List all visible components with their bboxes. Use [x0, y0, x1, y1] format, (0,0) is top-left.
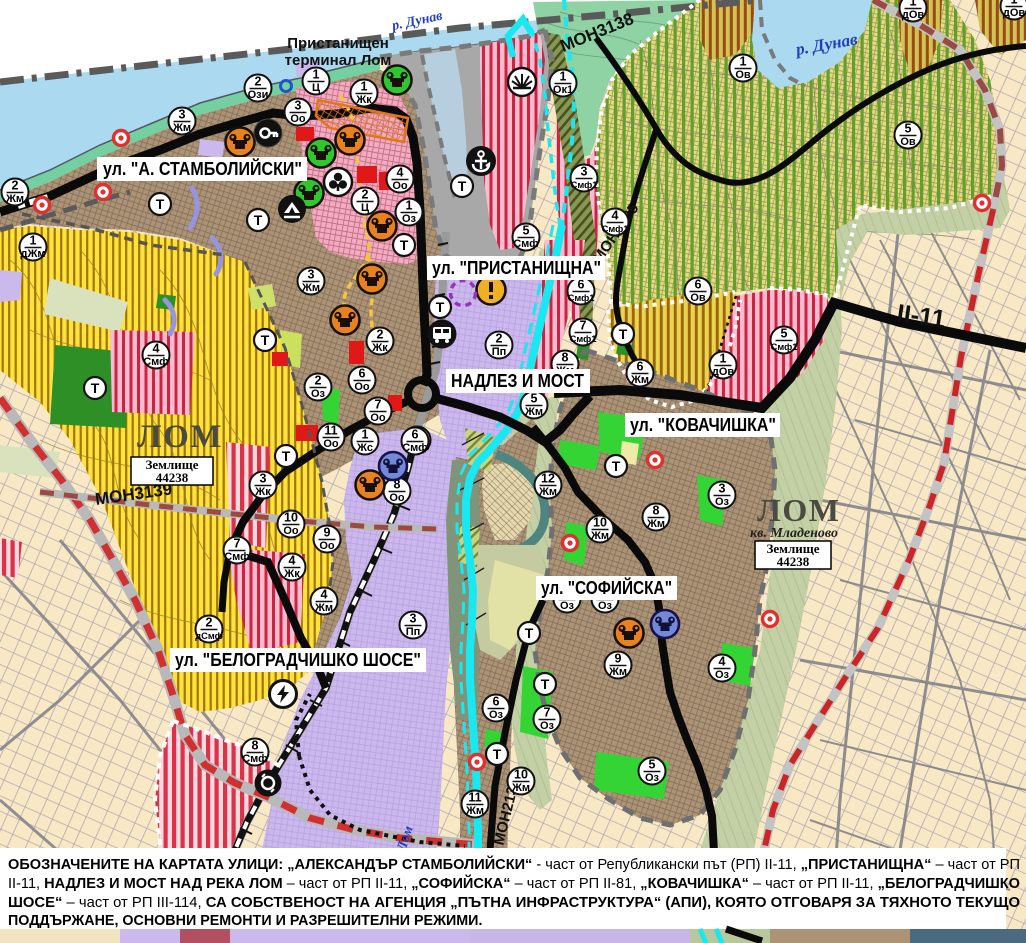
svg-text:Смф1: Смф1	[571, 180, 598, 190]
svg-text:8: 8	[252, 739, 259, 753]
svg-text:7: 7	[580, 319, 587, 333]
svg-text:Жм: Жм	[5, 193, 24, 205]
svg-text:дОв: дОв	[712, 366, 735, 378]
svg-text:1: 1	[30, 234, 37, 248]
svg-text:4: 4	[719, 655, 726, 669]
svg-text:Т: Т	[493, 746, 502, 762]
svg-text:2: 2	[362, 188, 369, 202]
svg-text:Т: Т	[525, 625, 534, 641]
svg-text:Оо: Оо	[290, 113, 306, 125]
svg-text:II-11, НАДЛЕЗ И МОСТ НАД РЕКА: II-11, НАДЛЕЗ И МОСТ НАД РЕКА ЛОМ – част…	[8, 874, 1020, 892]
svg-text:9: 9	[615, 652, 622, 666]
svg-text:7: 7	[544, 706, 551, 720]
svg-text:Т: Т	[156, 196, 165, 212]
svg-text:6: 6	[412, 428, 419, 442]
svg-text:Оо: Оо	[319, 540, 335, 552]
svg-text:Т: Т	[436, 299, 445, 315]
svg-text:3: 3	[410, 612, 417, 626]
svg-text:ул. "КОВАЧИШКА": ул. "КОВАЧИШКА"	[630, 415, 776, 435]
svg-text:6: 6	[637, 360, 644, 374]
svg-text:Т: Т	[619, 326, 628, 342]
svg-text:Жм: Жм	[172, 122, 191, 134]
svg-text:2: 2	[496, 332, 503, 346]
svg-text:Т: Т	[400, 237, 409, 253]
svg-text:Смф: Смф	[143, 356, 169, 368]
svg-text:Жм: Жм	[465, 805, 484, 817]
svg-text:Т: Т	[261, 332, 270, 348]
svg-text:Жм: Жм	[538, 486, 557, 498]
svg-text:кв. Младеново: кв. Младеново	[750, 526, 838, 541]
svg-text:Жм: Жм	[314, 602, 333, 614]
svg-text:Оз: Оз	[560, 600, 575, 612]
svg-text:10: 10	[514, 768, 528, 782]
svg-text:Оз: Оз	[715, 669, 730, 681]
svg-text:5: 5	[531, 392, 538, 406]
svg-text:Жк: Жк	[355, 94, 372, 106]
svg-text:Жк: Жк	[254, 486, 271, 498]
svg-text:3: 3	[295, 99, 302, 113]
svg-text:1: 1	[313, 68, 320, 82]
svg-text:Т: Т	[254, 212, 263, 228]
svg-text:Оо: Оо	[323, 438, 339, 450]
svg-text:Т: Т	[612, 458, 621, 474]
svg-text:Жк: Жк	[371, 342, 388, 354]
svg-text:дЖм: дЖм	[20, 248, 45, 260]
svg-text:Пп: Пп	[492, 346, 507, 358]
svg-text:Жс: Жс	[356, 442, 373, 454]
svg-text:ул. "А. СТАМБОЛИЙСКИ": ул. "А. СТАМБОЛИЙСКИ"	[103, 158, 302, 179]
svg-text:2: 2	[377, 328, 384, 342]
svg-text:Смф: Смф	[224, 551, 250, 563]
svg-text:дОв: дОв	[1003, 7, 1026, 19]
svg-text:Оо: Оо	[389, 492, 405, 504]
svg-text:Оо: Оо	[370, 412, 386, 424]
svg-text:Смф1: Смф1	[570, 334, 597, 344]
svg-text:Смф: Смф	[242, 753, 268, 765]
svg-text:2: 2	[255, 75, 262, 89]
svg-text:3: 3	[581, 165, 588, 179]
svg-text:Жм: Жм	[590, 530, 609, 542]
svg-text:Смф1: Смф1	[568, 293, 595, 303]
svg-text:10: 10	[284, 511, 298, 525]
svg-text:Оо: Оо	[354, 381, 370, 393]
svg-text:44238: 44238	[156, 470, 189, 485]
svg-text:Оз: Оз	[311, 388, 326, 400]
svg-text:Смф: Смф	[513, 238, 539, 250]
svg-text:ПОДДЪРЖАНЕ, ОСНОВНИ РЕМОНТИ И: ПОДДЪРЖАНЕ, ОСНОВНИ РЕМОНТИ И РАЗРЕШИТЕЛ…	[8, 913, 482, 929]
svg-text:10: 10	[593, 516, 607, 530]
svg-text:Т: Т	[541, 676, 550, 692]
svg-text:Оо: Оо	[392, 180, 408, 192]
svg-text:8: 8	[562, 351, 569, 365]
svg-text:дОв: дОв	[902, 9, 925, 21]
svg-text:1: 1	[361, 80, 368, 94]
svg-text:4: 4	[321, 588, 328, 602]
svg-text:Ок1: Ок1	[553, 84, 573, 96]
svg-text:4: 4	[612, 209, 619, 223]
svg-text:7: 7	[375, 398, 382, 412]
svg-text:1: 1	[720, 352, 727, 366]
svg-text:1: 1	[1011, 0, 1018, 7]
svg-text:5: 5	[649, 758, 656, 772]
svg-text:ул. "СОФИЙСКА": ул. "СОФИЙСКА"	[541, 577, 672, 598]
svg-text:7: 7	[234, 537, 241, 551]
svg-text:Ов: Ов	[690, 292, 706, 304]
svg-text:ул. "БЕЛОГРАДЧИШКО ШОСЕ": ул. "БЕЛОГРАДЧИШКО ШОСЕ"	[175, 650, 421, 670]
svg-text:6: 6	[695, 278, 702, 292]
svg-text:Ц: Ц	[312, 82, 320, 94]
svg-text:Т: Т	[458, 178, 467, 194]
svg-text:3: 3	[719, 482, 726, 496]
svg-text:Пп: Пп	[406, 626, 421, 638]
svg-text:12: 12	[541, 472, 555, 486]
svg-text:Жм: Жм	[608, 666, 627, 678]
svg-text:Ц: Ц	[361, 202, 369, 214]
svg-text:11: 11	[468, 791, 481, 805]
svg-text:1: 1	[910, 0, 917, 9]
svg-text:Жм: Жм	[524, 406, 543, 418]
svg-text:Оз: Оз	[715, 496, 730, 508]
svg-text:5: 5	[905, 122, 912, 136]
svg-text:3: 3	[260, 472, 267, 486]
svg-text:Жм: Жм	[511, 782, 530, 794]
svg-text:Оз: Оз	[489, 709, 504, 721]
svg-text:1: 1	[560, 70, 567, 84]
svg-text:6: 6	[493, 695, 500, 709]
svg-text:дСмф: дСмф	[195, 631, 223, 641]
svg-text:ЛОМ: ЛОМ	[757, 492, 840, 528]
svg-text:44238: 44238	[777, 554, 810, 569]
svg-text:9: 9	[324, 526, 331, 540]
svg-text:Оз: Оз	[402, 213, 417, 225]
svg-text:1: 1	[740, 55, 747, 69]
svg-text:4: 4	[153, 342, 160, 356]
svg-text:3: 3	[308, 268, 315, 282]
svg-text:6: 6	[359, 367, 366, 381]
svg-text:2: 2	[315, 374, 322, 388]
svg-text:1: 1	[406, 199, 413, 213]
svg-text:Жм: Жм	[301, 282, 320, 294]
svg-text:11: 11	[324, 424, 337, 438]
svg-text:ОБОЗНАЧЕНИТЕ НА КАРТАТА УЛИЦИ:: ОБОЗНАЧЕНИТЕ НА КАРТАТА УЛИЦИ: „АЛЕКСАНД…	[8, 855, 1020, 873]
svg-text:Жм: Жм	[646, 518, 665, 530]
svg-text:Т: Т	[91, 380, 100, 396]
svg-text:8: 8	[653, 504, 660, 518]
svg-text:Жм: Жм	[630, 374, 649, 386]
svg-text:Оз: Оз	[598, 600, 613, 612]
svg-text:Ов: Ов	[900, 136, 916, 148]
svg-text:Ози: Ози	[248, 89, 269, 101]
svg-text:ШОСЕ“ – част от РП III-114, СА: ШОСЕ“ – част от РП III-114, СА СОБСТВЕНО…	[8, 895, 1020, 911]
svg-text:Пристанищен: Пристанищен	[287, 35, 389, 52]
svg-text:2: 2	[206, 616, 213, 630]
svg-text:НАДЛЕЗ И МОСТ: НАДЛЕЗ И МОСТ	[451, 371, 584, 391]
svg-text:4: 4	[397, 166, 404, 180]
svg-text:5: 5	[523, 224, 530, 238]
svg-text:Жк: Жк	[283, 568, 300, 580]
svg-text:Смф1: Смф1	[771, 342, 798, 352]
svg-text:Т: Т	[282, 448, 291, 464]
svg-text:1: 1	[362, 428, 369, 442]
svg-text:2: 2	[12, 179, 19, 193]
svg-text:Ов: Ов	[735, 69, 751, 81]
svg-text:терминал Лом: терминал Лом	[285, 52, 392, 69]
svg-text:Смф1: Смф1	[602, 224, 629, 234]
svg-text:ЛОМ: ЛОМ	[137, 419, 223, 455]
svg-text:3: 3	[179, 108, 186, 122]
svg-text:Оз: Оз	[540, 720, 555, 732]
svg-text:5: 5	[781, 327, 788, 341]
svg-text:Оз: Оз	[645, 772, 660, 784]
svg-text:ул. "ПРИСТАНИЩНА": ул. "ПРИСТАНИЩНА"	[432, 258, 601, 278]
svg-text:Оо: Оо	[283, 525, 299, 537]
svg-text:Смф: Смф	[402, 442, 428, 454]
svg-text:4: 4	[289, 554, 296, 568]
